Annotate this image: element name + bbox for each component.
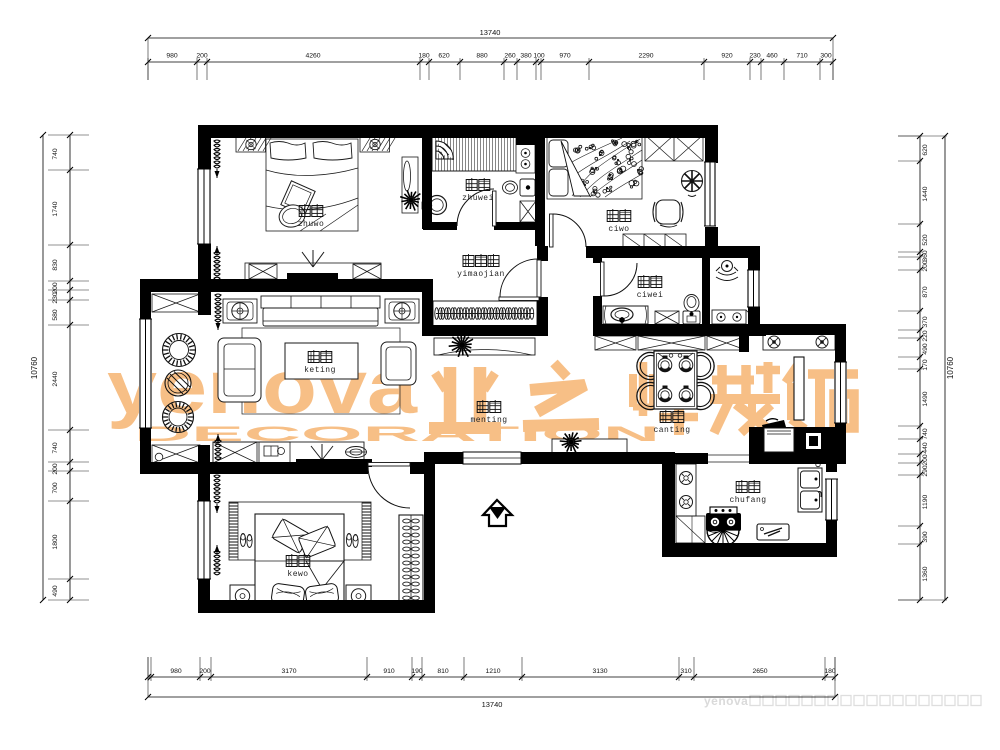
svg-text:170: 170: [922, 359, 929, 371]
svg-text:200: 200: [196, 53, 208, 60]
svg-text:290: 290: [922, 465, 929, 477]
svg-text:980: 980: [170, 668, 182, 675]
svg-text:1210: 1210: [485, 668, 500, 675]
svg-text:2290: 2290: [638, 53, 653, 60]
svg-text:440: 440: [922, 442, 929, 454]
svg-text:canting: canting: [653, 426, 690, 435]
svg-text:380: 380: [520, 53, 532, 60]
svg-text:920: 920: [721, 53, 733, 60]
svg-text:310: 310: [680, 668, 692, 675]
svg-text:1740: 1740: [52, 201, 59, 216]
svg-text:1490: 1490: [922, 391, 929, 406]
svg-text:180: 180: [824, 668, 836, 675]
svg-text:200: 200: [922, 260, 929, 272]
svg-text:2650: 2650: [752, 668, 767, 675]
svg-text:100: 100: [533, 53, 545, 60]
svg-text:220: 220: [922, 330, 929, 342]
svg-text:ciwei: ciwei: [637, 291, 664, 300]
svg-text:970: 970: [559, 53, 571, 60]
svg-text:980: 980: [166, 53, 178, 60]
svg-text:620: 620: [922, 144, 929, 156]
svg-text:yimaojian: yimaojian: [457, 270, 505, 279]
svg-text:1190: 1190: [922, 494, 929, 509]
svg-text:10760: 10760: [946, 356, 955, 379]
svg-text:4260: 4260: [305, 53, 320, 60]
svg-text:yenova: yenova: [704, 694, 748, 708]
svg-text:520: 520: [922, 234, 929, 246]
svg-text:kewo: kewo: [287, 570, 308, 579]
svg-text:200: 200: [52, 463, 59, 475]
svg-text:580: 580: [52, 309, 59, 321]
svg-text:13740: 13740: [480, 28, 501, 37]
svg-text:360: 360: [922, 250, 929, 262]
svg-text:menting: menting: [470, 416, 507, 425]
svg-text:ciwo: ciwo: [608, 225, 629, 234]
svg-text:740: 740: [52, 148, 59, 160]
svg-text:830: 830: [52, 259, 59, 271]
svg-text:740: 740: [52, 442, 59, 454]
svg-text:710: 710: [796, 53, 808, 60]
svg-text:880: 880: [476, 53, 488, 60]
svg-text:810: 810: [437, 668, 449, 675]
svg-text:13740: 13740: [482, 700, 503, 709]
svg-text:yenova: yenova: [107, 345, 418, 430]
svg-text:460: 460: [766, 53, 778, 60]
svg-text:1800: 1800: [52, 534, 59, 549]
svg-text:370: 370: [922, 316, 929, 328]
svg-text:200: 200: [199, 668, 211, 675]
svg-text:740: 740: [922, 428, 929, 440]
svg-text:zhuwo: zhuwo: [298, 220, 325, 229]
svg-text:keting: keting: [304, 366, 336, 375]
svg-text:3130: 3130: [592, 668, 607, 675]
svg-text:700: 700: [52, 482, 59, 494]
svg-text:zhuwei: zhuwei: [462, 194, 494, 203]
svg-text:1440: 1440: [922, 186, 929, 201]
svg-text:910: 910: [383, 668, 395, 675]
svg-text:190: 190: [411, 668, 423, 675]
svg-text:490: 490: [52, 585, 59, 597]
svg-text:200: 200: [52, 282, 59, 294]
svg-text:3170: 3170: [281, 668, 296, 675]
svg-text:chufang: chufang: [729, 496, 766, 505]
svg-text:390: 390: [922, 531, 929, 543]
svg-text:230: 230: [52, 292, 59, 304]
svg-text:300: 300: [820, 53, 832, 60]
svg-text:870: 870: [922, 286, 929, 298]
svg-text:490: 490: [922, 343, 929, 355]
svg-text:260: 260: [504, 53, 516, 60]
svg-text:230: 230: [749, 53, 761, 60]
svg-text:1360: 1360: [922, 566, 929, 581]
svg-text:2440: 2440: [52, 371, 59, 386]
svg-text:620: 620: [438, 53, 450, 60]
svg-text:10760: 10760: [30, 356, 39, 379]
svg-text:200: 200: [922, 454, 929, 466]
